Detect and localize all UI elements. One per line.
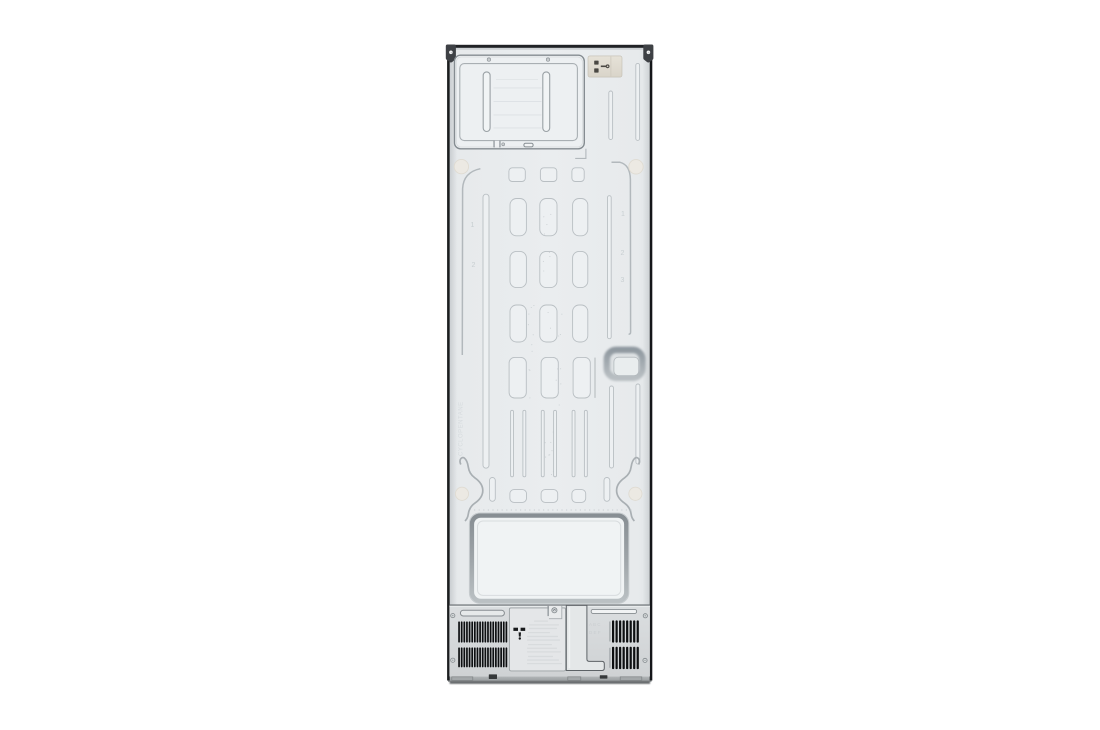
- svg-text:1: 1: [621, 211, 625, 218]
- svg-text:CYCLOPENTANE: CYCLOPENTANE: [459, 401, 465, 456]
- svg-text:A B C: A B C: [589, 622, 601, 627]
- svg-text:D E F: D E F: [589, 630, 601, 635]
- svg-text:1: 1: [471, 222, 475, 229]
- svg-text:2: 2: [472, 262, 476, 269]
- svg-text:2: 2: [621, 250, 625, 257]
- svg-text:3: 3: [621, 277, 625, 284]
